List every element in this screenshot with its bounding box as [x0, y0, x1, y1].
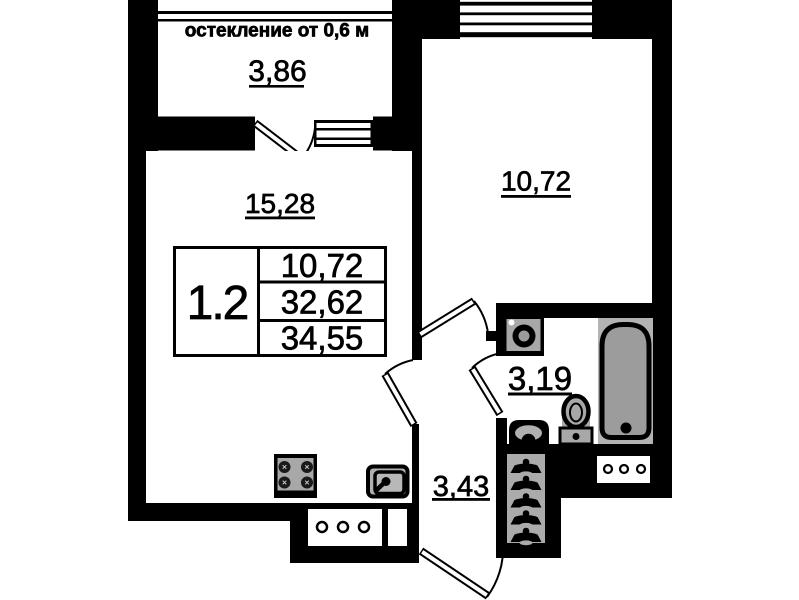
svg-text:3,86: 3,86: [248, 55, 306, 88]
svg-text:остекление от 0,6 м: остекление от 0,6 м: [185, 21, 369, 42]
svg-text:10,72: 10,72: [501, 166, 571, 197]
svg-text:34,55: 34,55: [281, 320, 364, 357]
svg-text:3,19: 3,19: [508, 360, 572, 397]
svg-text:10,72: 10,72: [281, 247, 364, 284]
svg-text:32,62: 32,62: [281, 284, 364, 321]
svg-text:15,28: 15,28: [245, 188, 315, 219]
svg-text:1.2: 1.2: [187, 277, 248, 330]
